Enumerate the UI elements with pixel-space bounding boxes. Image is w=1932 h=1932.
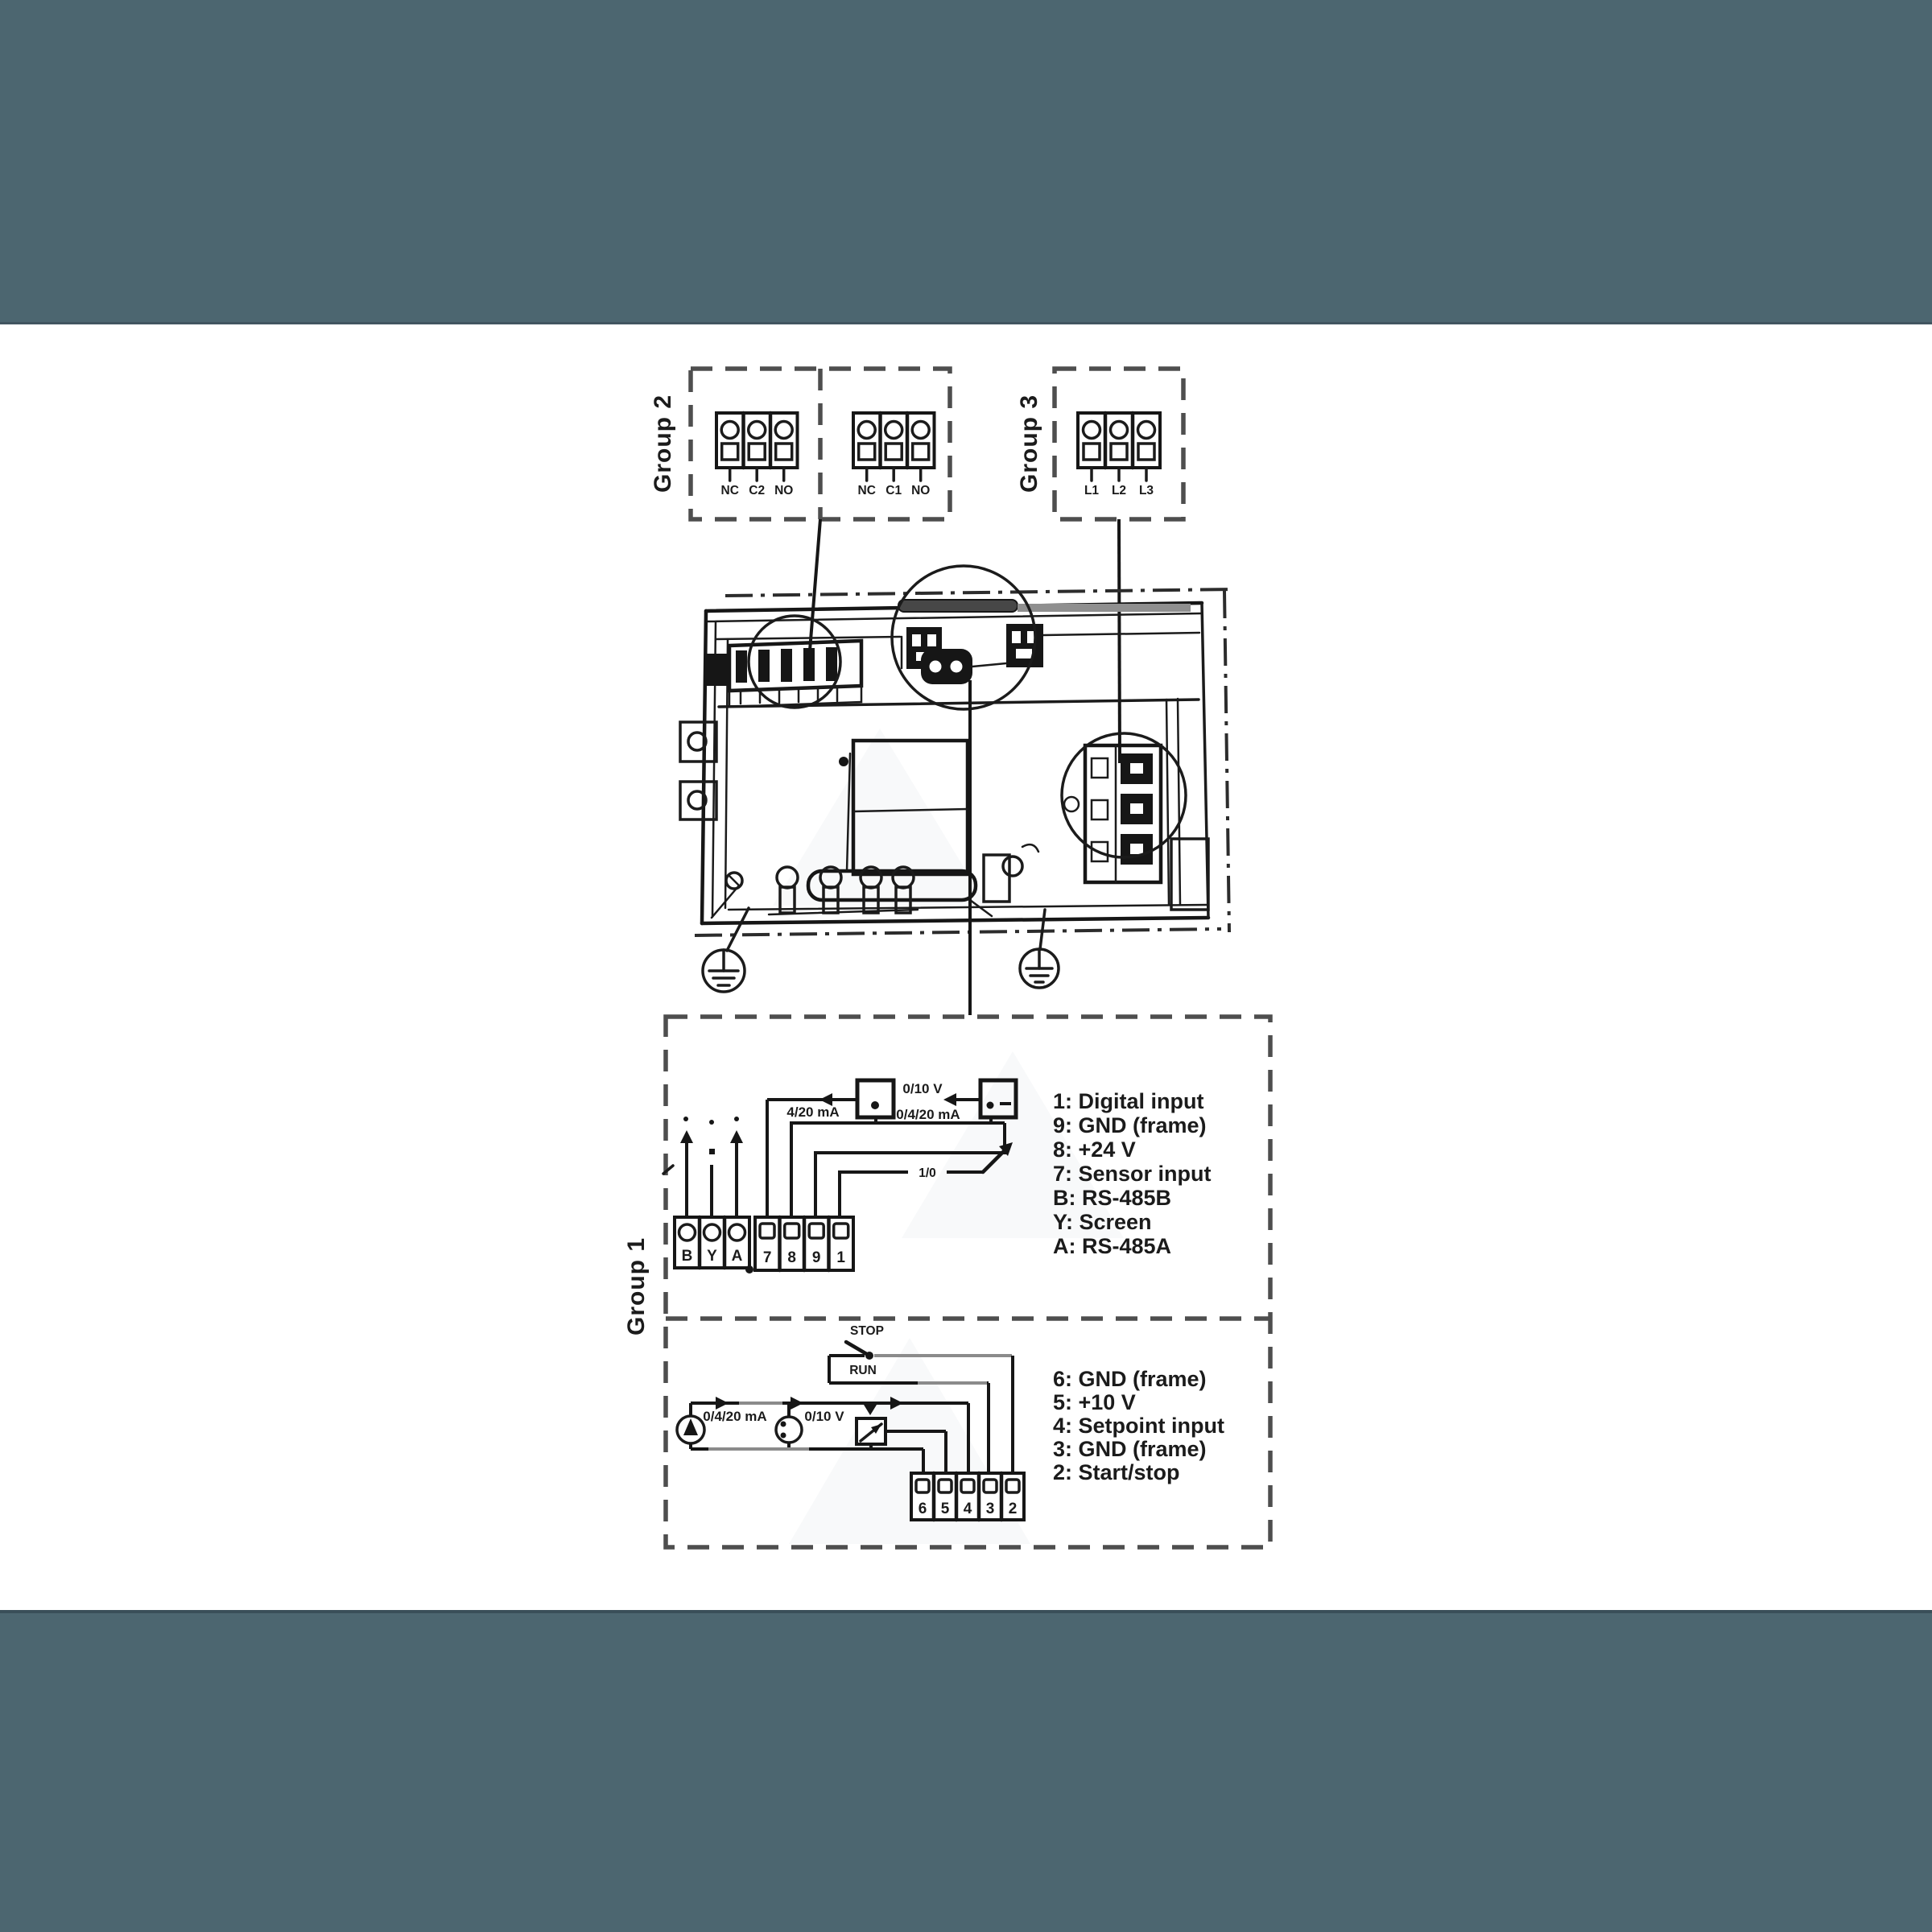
wiring-diagram: Group 2 NC C2 NO <box>0 0 1932 1932</box>
voltage-source-icon <box>776 1403 802 1449</box>
legend-lower: 6: GND (frame) 5: +10 V 4: Setpoint inpu… <box>1053 1367 1224 1484</box>
legend-line: 4: Setpoint input <box>1053 1414 1224 1438</box>
legend-line: 2: Start/stop <box>1053 1460 1180 1484</box>
signal-label-4-20ma: 4/20 mA <box>786 1104 839 1120</box>
terminal-label: NC <box>721 484 739 497</box>
terminal-label: 2 <box>1009 1501 1018 1517</box>
signal-label-0-4-20ma: 0/4/20 mA <box>896 1107 960 1122</box>
terminal-label: NO <box>911 484 930 497</box>
terminal-label: A <box>732 1248 743 1265</box>
legend-line: 8: +24 V <box>1053 1137 1136 1162</box>
legend-line: 9: GND (frame) <box>1053 1113 1207 1137</box>
legend-line: 1: Digital input <box>1053 1089 1203 1113</box>
terminal-label: 4 <box>964 1501 972 1517</box>
terminal-label: NO <box>774 484 793 497</box>
io-terminal-block: 7 8 9 1 <box>755 1217 853 1270</box>
terminal-label: 7 <box>763 1249 772 1266</box>
mains-terminal-block: L1 L2 L3 <box>1078 413 1160 497</box>
comm-terminal-block: B Y A <box>675 1217 753 1274</box>
terminal-box-drawing <box>680 566 1235 1015</box>
terminal-label: NC <box>858 484 876 497</box>
group3-box: Group 3 L1 L2 L3 <box>1016 369 1183 763</box>
stop-label: STOP <box>850 1324 884 1338</box>
signal-label-0-10v: 0/10 V <box>902 1081 943 1096</box>
legend-line: 3: GND (frame) <box>1053 1437 1207 1461</box>
terminal-label: L3 <box>1139 484 1154 497</box>
legend-line: B: RS-485B <box>1053 1186 1171 1210</box>
group1-box: Group 1 0/10 V 0/4/20 mA 4/20 mA <box>623 1017 1270 1547</box>
current-source-icon <box>677 1403 704 1449</box>
terminal-label: L1 <box>1084 484 1099 497</box>
page: Group 2 NC C2 NO <box>0 0 1932 1932</box>
legend-line: A: RS-485A <box>1053 1234 1171 1258</box>
switch-label: 1/0 <box>919 1166 936 1180</box>
group3-label: Group 3 <box>1016 394 1042 493</box>
run-label: RUN <box>849 1364 877 1377</box>
signal-label-0-4-20ma-lower: 0/4/20 mA <box>703 1409 766 1424</box>
leader-line-group2 <box>810 519 820 650</box>
start-stop-switch <box>846 1342 869 1356</box>
terminal-label: C2 <box>749 484 765 497</box>
legend-upper: 1: Digital input 9: GND (frame) 8: +24 V… <box>1053 1089 1212 1258</box>
legend-line: 5: +10 V <box>1053 1390 1136 1414</box>
terminal-label: 5 <box>941 1501 950 1517</box>
sensor-box-1 <box>857 1080 894 1117</box>
relay-terminal-block-left: NC C2 NO <box>716 413 798 497</box>
legend-line: 7: Sensor input <box>1053 1162 1212 1186</box>
group1-upper-diagram: 0/10 V 0/4/20 mA 4/20 mA 1/0 <box>663 1080 1212 1274</box>
earth-ground-icon-left <box>703 908 749 992</box>
terminal-label: 8 <box>787 1249 796 1266</box>
terminal-label: 1 <box>836 1249 845 1266</box>
group1-label: Group 1 <box>623 1237 650 1335</box>
legend-line: Y: Screen <box>1053 1210 1152 1234</box>
terminal-label: C1 <box>885 484 902 497</box>
terminal-label: Y <box>707 1248 717 1265</box>
relay-terminal-block-right: NC C1 NO <box>853 413 935 497</box>
terminal-label: 6 <box>919 1501 927 1517</box>
group2-label: Group 2 <box>650 394 676 493</box>
terminal-label: 3 <box>986 1501 995 1517</box>
legend-line: 6: GND (frame) <box>1053 1367 1207 1391</box>
terminal-label: 9 <box>812 1249 821 1266</box>
terminal-label: B <box>682 1248 693 1265</box>
terminal-label: L2 <box>1112 484 1126 497</box>
leader-line-group3 <box>1119 519 1120 763</box>
signal-label-0-10v-lower: 0/10 V <box>804 1409 844 1424</box>
control-terminal-block: 6 5 4 3 2 <box>911 1473 1024 1520</box>
